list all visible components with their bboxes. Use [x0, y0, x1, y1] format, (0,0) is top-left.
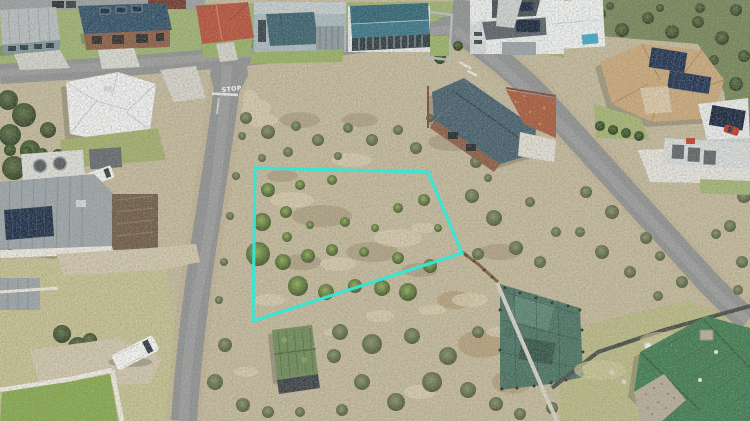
- aerial-photo: STOP: [0, 0, 750, 421]
- photo-grain-light: [0, 0, 750, 421]
